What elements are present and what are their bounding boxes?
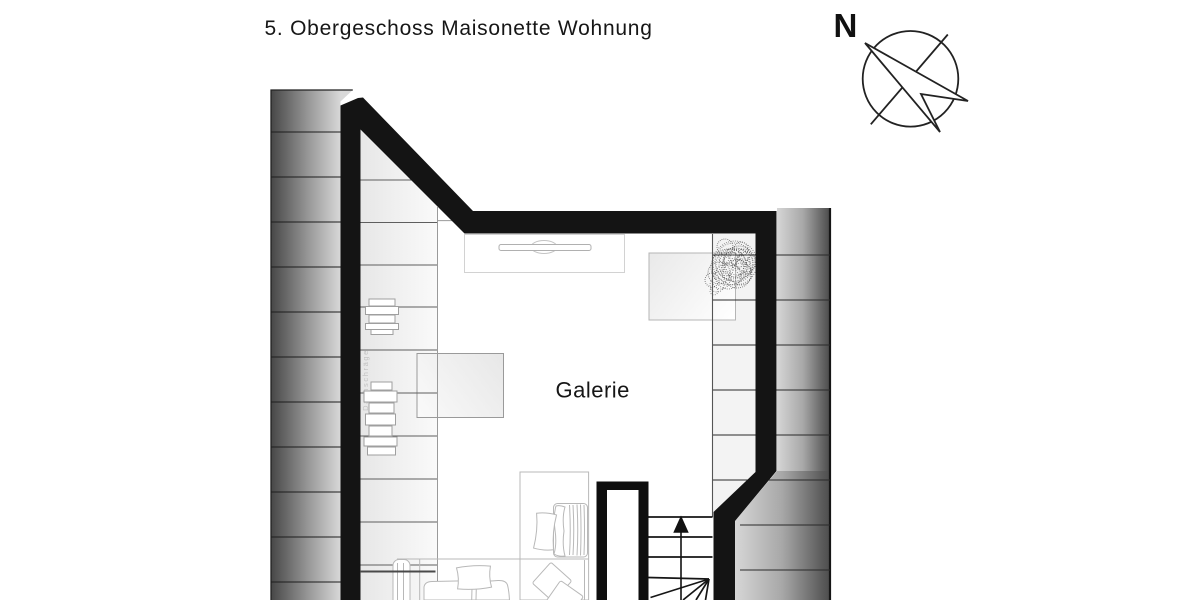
- svg-text:N: N: [834, 7, 858, 44]
- svg-text:5. Obergeschoss Maisonette Woh: 5. Obergeschoss Maisonette Wohnung: [265, 17, 653, 40]
- svg-text:Galerie: Galerie: [556, 378, 630, 403]
